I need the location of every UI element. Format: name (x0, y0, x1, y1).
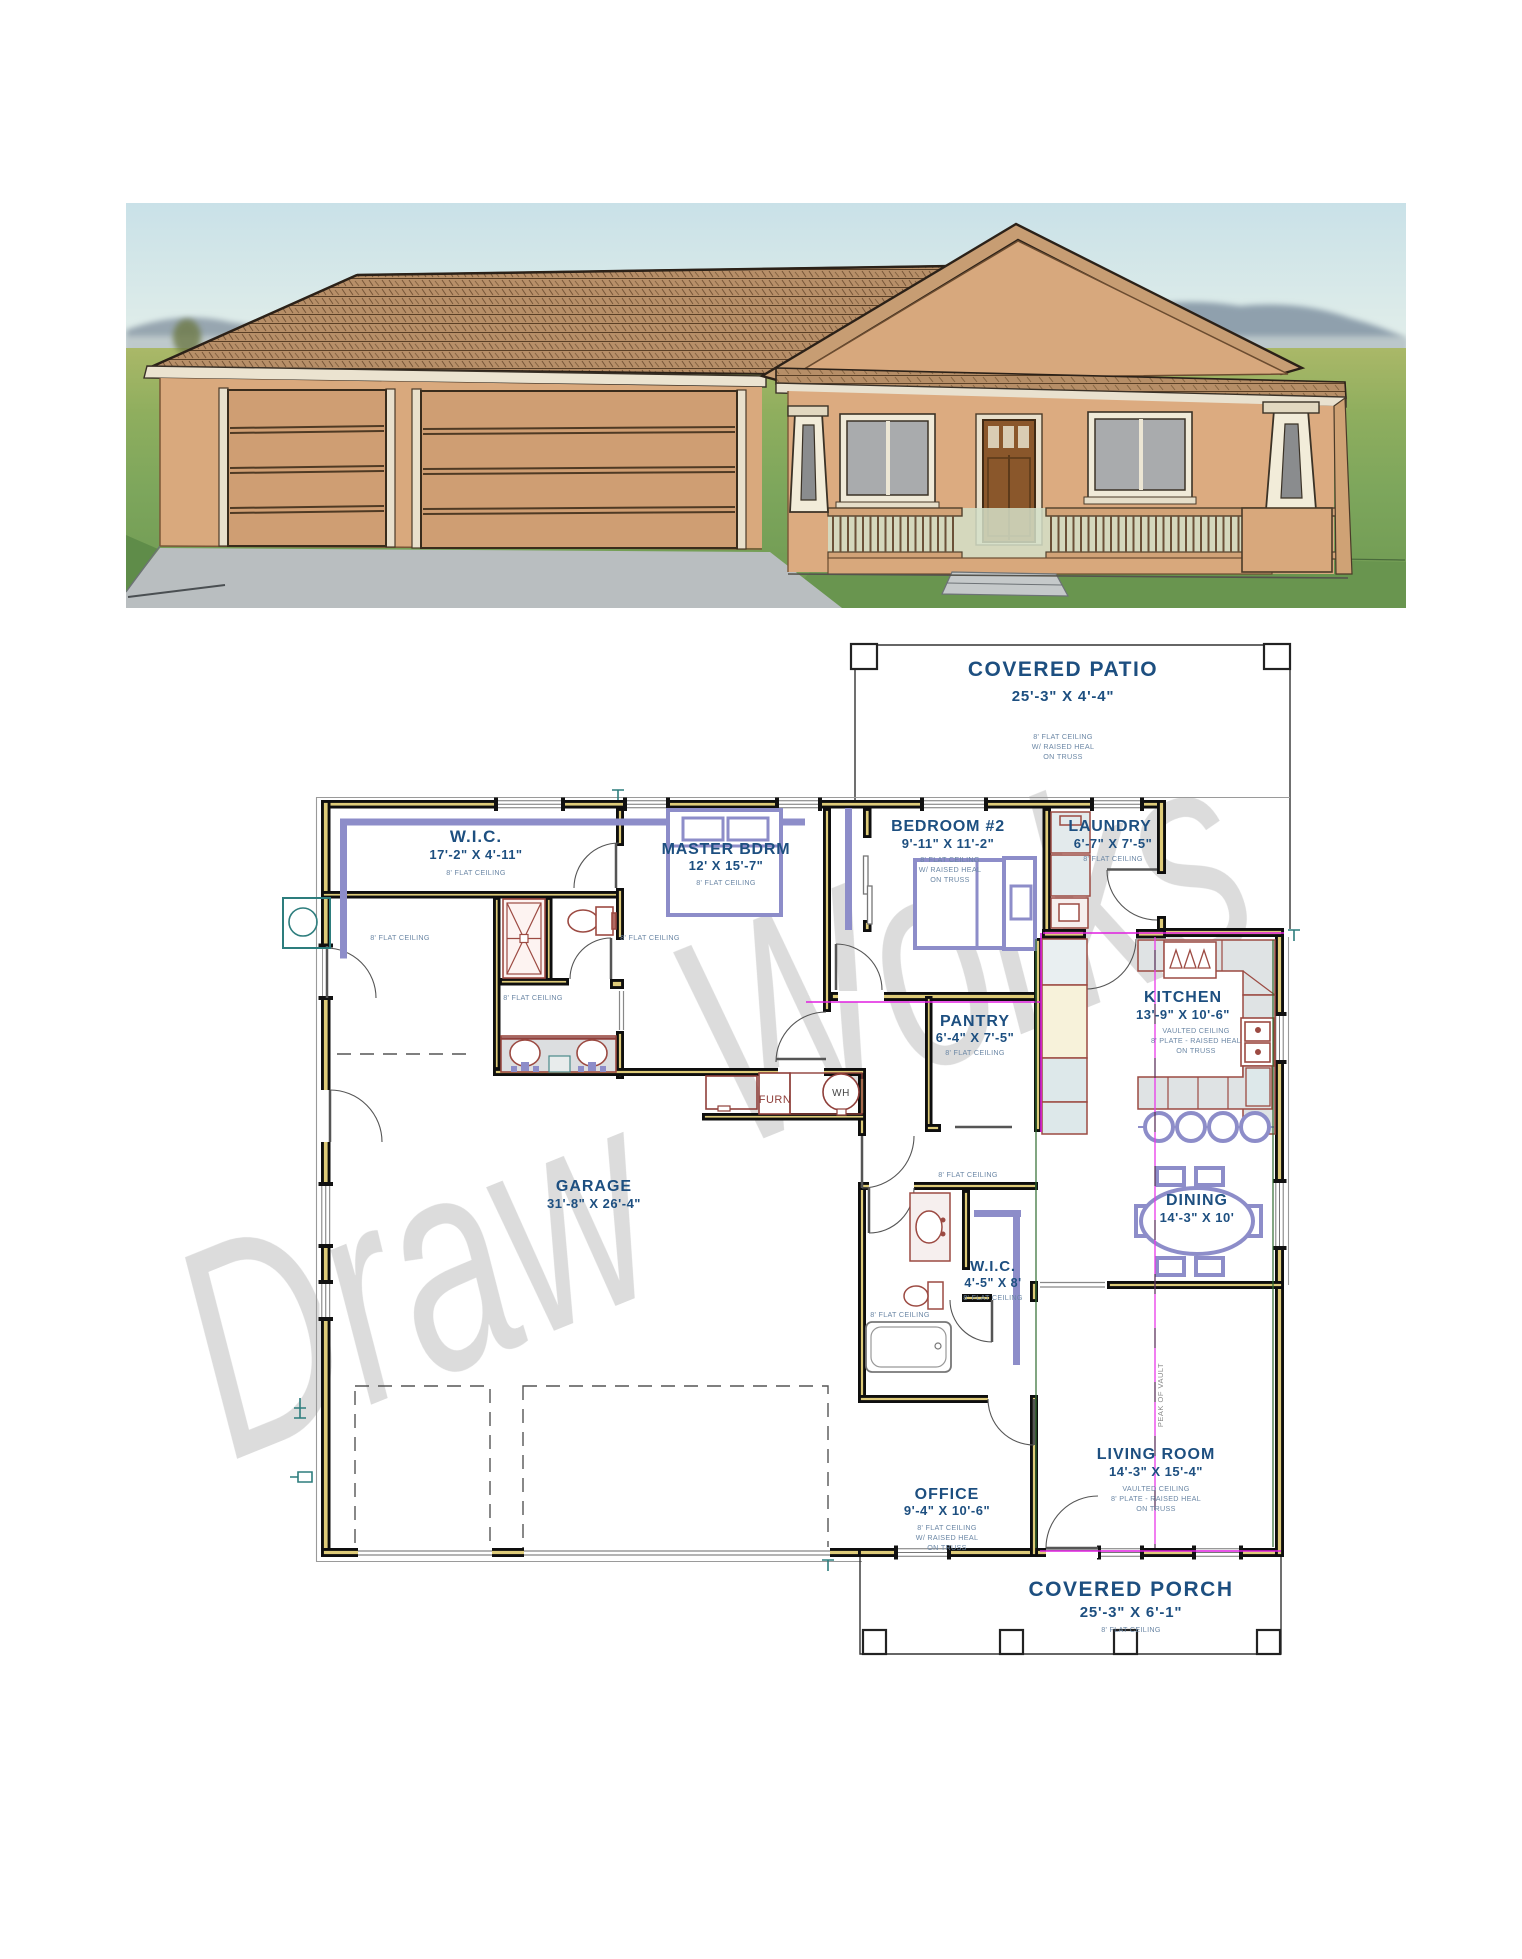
svg-text:WH: WH (832, 1088, 850, 1099)
svg-text:W/ RAISED HEAL: W/ RAISED HEAL (1032, 742, 1095, 751)
svg-text:8' FLAT CEILING: 8' FLAT CEILING (917, 1523, 977, 1532)
svg-text:OFFICE: OFFICE (915, 1486, 980, 1503)
svg-text:VAULTED CEILING: VAULTED CEILING (1122, 1484, 1189, 1493)
svg-text:6'-4" X 7'-5": 6'-4" X 7'-5" (936, 1030, 1014, 1045)
svg-text:PEAK OF VAULT: PEAK OF VAULT (1156, 1363, 1165, 1427)
svg-text:8' FLAT CEILING: 8' FLAT CEILING (370, 933, 430, 942)
svg-text:FURN: FURN (759, 1094, 792, 1106)
svg-text:KITCHEN: KITCHEN (1144, 989, 1222, 1006)
svg-text:LAUNDRY: LAUNDRY (1068, 818, 1151, 835)
svg-text:8' FLAT CEILING: 8' FLAT CEILING (945, 1048, 1005, 1057)
svg-text:31'-8" X 26'-4": 31'-8" X 26'-4" (547, 1196, 641, 1211)
svg-text:8' FLAT CEILING: 8' FLAT CEILING (503, 993, 563, 1002)
svg-text:PANTRY: PANTRY (940, 1013, 1010, 1030)
svg-text:DINING: DINING (1166, 1192, 1228, 1209)
svg-text:COVERED PATIO: COVERED PATIO (968, 658, 1158, 681)
svg-text:14'-3" X 15'-4": 14'-3" X 15'-4" (1109, 1464, 1203, 1479)
svg-text:VAULTED CEILING: VAULTED CEILING (1162, 1026, 1229, 1035)
svg-text:25'-3" X 6'-1": 25'-3" X 6'-1" (1080, 1604, 1183, 1621)
svg-text:8' FLAT CEILING: 8' FLAT CEILING (1101, 1625, 1161, 1634)
svg-text:W.I.C.: W.I.C. (970, 1258, 1016, 1275)
svg-text:8' FLAT CEILING: 8' FLAT CEILING (963, 1293, 1023, 1302)
svg-text:ON TRUSS: ON TRUSS (1043, 752, 1082, 761)
svg-text:8' FLAT CEILING: 8' FLAT CEILING (620, 933, 680, 942)
svg-text:25'-3" X 4'-4": 25'-3" X 4'-4" (1012, 688, 1115, 705)
svg-text:GARAGE: GARAGE (556, 1178, 632, 1195)
svg-text:W/ RAISED HEAL: W/ RAISED HEAL (919, 865, 982, 874)
svg-text:8' FLAT CEILING: 8' FLAT CEILING (1033, 732, 1093, 741)
svg-text:ON TRUSS: ON TRUSS (927, 1543, 966, 1552)
svg-text:ON TRUSS: ON TRUSS (1176, 1046, 1215, 1055)
svg-text:14'-3" X 10': 14'-3" X 10' (1160, 1210, 1235, 1225)
svg-text:12' X 15'-7": 12' X 15'-7" (689, 858, 764, 873)
svg-text:9'-11" X 11'-2": 9'-11" X 11'-2" (902, 836, 995, 851)
svg-text:9'-4" X 10'-6": 9'-4" X 10'-6" (904, 1503, 990, 1518)
svg-text:BEDROOM #2: BEDROOM #2 (891, 818, 1005, 835)
svg-text:17'-2" X 4'-11": 17'-2" X 4'-11" (429, 847, 522, 862)
svg-text:LIVING ROOM: LIVING ROOM (1097, 1446, 1216, 1463)
svg-text:8' FLAT CEILING: 8' FLAT CEILING (920, 855, 980, 864)
svg-text:8' FLAT CEILING: 8' FLAT CEILING (870, 1310, 930, 1319)
svg-text:MASTER BDRM: MASTER BDRM (662, 841, 791, 858)
svg-text:4'-5" X 8': 4'-5" X 8' (964, 1276, 1021, 1290)
svg-text:8' FLAT CEILING: 8' FLAT CEILING (446, 868, 506, 877)
svg-text:ON TRUSS: ON TRUSS (1136, 1504, 1175, 1513)
svg-text:8' FLAT CEILING: 8' FLAT CEILING (1083, 854, 1143, 863)
svg-text:6'-7" X 7'-5": 6'-7" X 7'-5" (1074, 836, 1152, 851)
svg-text:8' FLAT CEILING: 8' FLAT CEILING (696, 878, 756, 887)
svg-text:W/ RAISED HEAL: W/ RAISED HEAL (916, 1533, 979, 1542)
svg-text:ON TRUSS: ON TRUSS (930, 875, 969, 884)
svg-text:8' PLATE - RAISED HEAL: 8' PLATE - RAISED HEAL (1111, 1494, 1201, 1503)
svg-text:13'-9" X 10'-6": 13'-9" X 10'-6" (1136, 1007, 1230, 1022)
svg-text:8' FLAT CEILING: 8' FLAT CEILING (938, 1170, 998, 1179)
svg-text:W.I.C.: W.I.C. (450, 827, 502, 846)
svg-text:COVERED PORCH: COVERED PORCH (1028, 1578, 1233, 1601)
svg-text:8' PLATE - RAISED HEAL: 8' PLATE - RAISED HEAL (1151, 1036, 1241, 1045)
